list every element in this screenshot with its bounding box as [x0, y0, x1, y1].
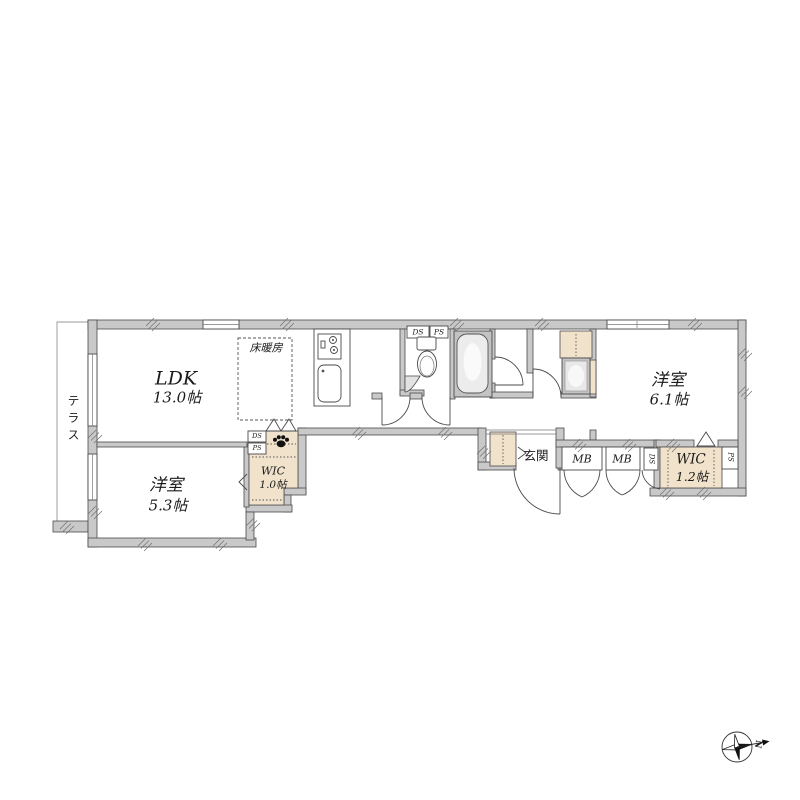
washing-machine-icon [562, 358, 590, 394]
door-arc [382, 397, 410, 425]
bedroom-53-label: 洋室 [149, 478, 183, 495]
floorplan-canvas: テラス LDK 13.0帖 床暖房 洋室 5.3帖 WIC 1.0帖 玄関 MB… [0, 0, 800, 800]
ds-shaft-label: DS [412, 328, 423, 336]
wic-10-area: 1.0帖 [259, 480, 286, 491]
ds-shaft-label: DS [252, 433, 262, 440]
wic-12-area: 1.2帖 [676, 471, 708, 484]
bedroom-53-area: 5.3帖 [149, 499, 188, 514]
door-arc [533, 369, 561, 397]
entrance-door-arc [514, 468, 560, 514]
window [607, 320, 669, 329]
entrance-label: 玄関 [523, 450, 548, 463]
ps-shaft-label: PS [253, 445, 262, 452]
wic-10-label: WIC [261, 466, 285, 477]
folding-door-icon [266, 419, 296, 431]
bathtub-icon [454, 331, 492, 397]
folding-door-icon [697, 432, 715, 446]
meter-box-1-label: MB [572, 454, 591, 465]
ldk-label: LDK [155, 370, 197, 389]
mb-double-door [606, 470, 640, 495]
mb-double-door [564, 470, 600, 497]
kitchen-icon [314, 329, 350, 406]
ps-shaft-label: PS [727, 452, 734, 462]
window [88, 354, 97, 426]
bedroom-61-label: 洋室 [651, 373, 685, 390]
compass-icon [720, 728, 772, 762]
bedroom-61-area: 6.1帖 [650, 393, 689, 408]
washer-side-shelf [590, 360, 596, 394]
wic-12-label: WIC [676, 453, 706, 467]
toilet-icon [405, 337, 437, 392]
terrace-label: テラス [67, 395, 79, 446]
ds-shaft-label: DS [648, 454, 655, 464]
window [88, 454, 97, 500]
floor-heating-label: 床暖房 [250, 343, 283, 354]
sink-icon [318, 365, 341, 402]
ldk-area: 13.0帖 [153, 391, 201, 406]
window [203, 320, 239, 329]
door-arc [495, 357, 523, 385]
ps-shaft-label: PS [434, 328, 444, 336]
door-arc [422, 397, 450, 425]
compass-north-label: N [752, 739, 762, 749]
meter-box-2-label: MB [612, 454, 631, 465]
